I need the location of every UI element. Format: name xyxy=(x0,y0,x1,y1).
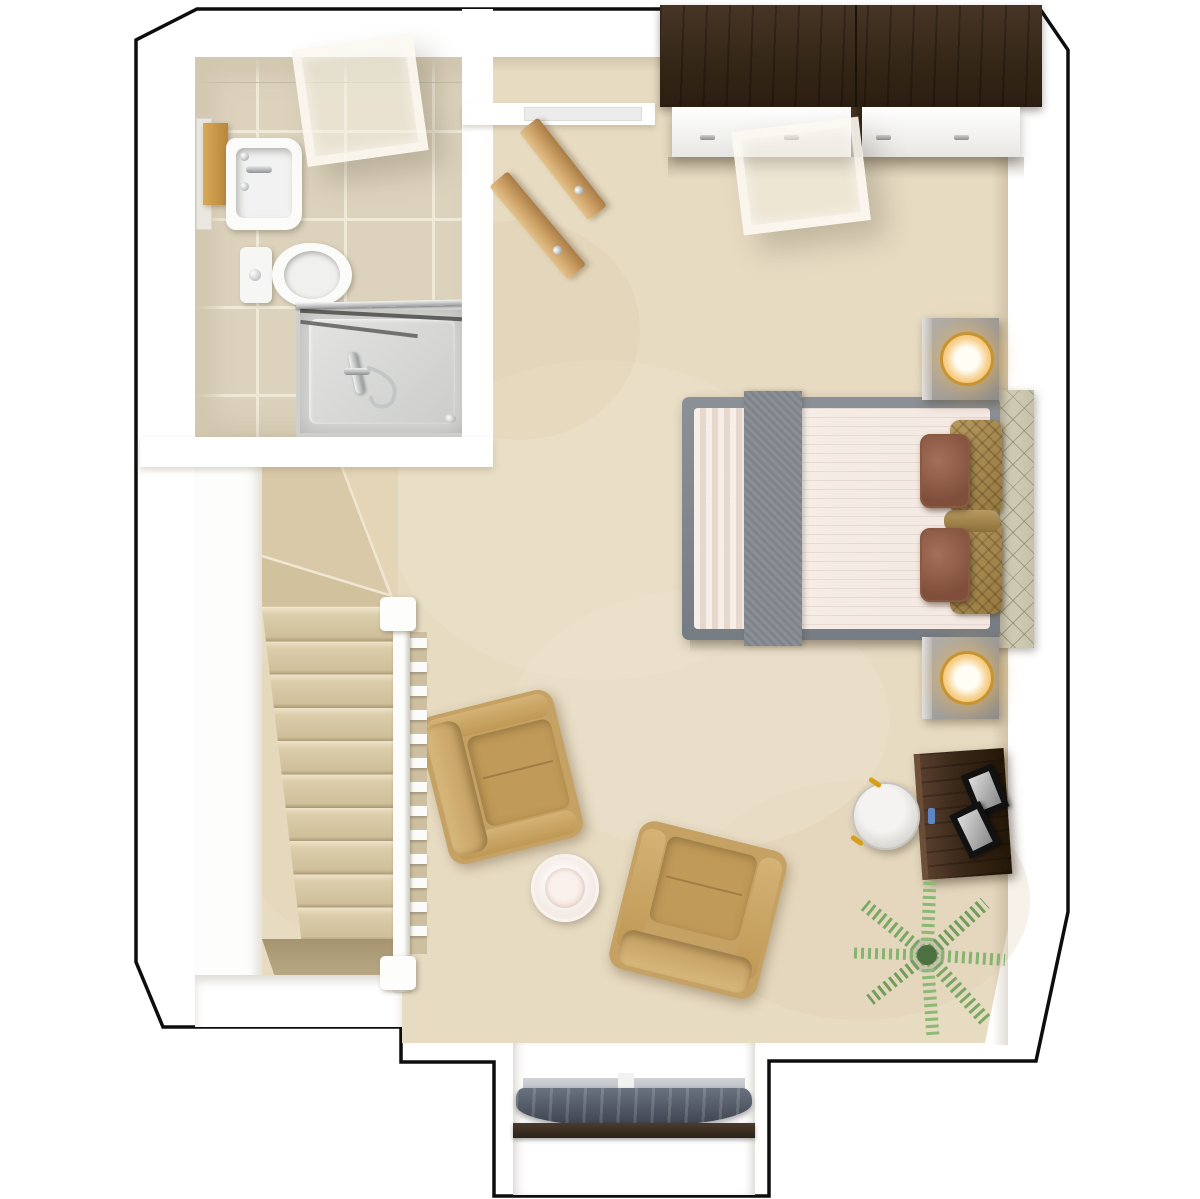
pillow-brown-bottom xyxy=(920,528,970,602)
round-side-table xyxy=(531,854,599,922)
wall-bathroom-right xyxy=(462,9,493,467)
plant-center xyxy=(917,945,937,965)
wall-bathroom-bottom xyxy=(140,437,493,467)
banister-rail xyxy=(393,600,410,992)
baluster xyxy=(408,662,427,672)
vanity-shelf xyxy=(203,123,228,205)
baluster xyxy=(408,878,427,888)
door-frame xyxy=(524,107,642,121)
side-table-top xyxy=(545,868,585,908)
faucet-knob-hot xyxy=(240,152,249,161)
closet-door-handle xyxy=(573,184,586,197)
staircase-lower-flight xyxy=(262,939,398,979)
baluster xyxy=(408,926,427,936)
baluster xyxy=(408,710,427,720)
shower-drain xyxy=(444,414,456,423)
faucet xyxy=(246,166,272,173)
wardrobe-handle-1 xyxy=(700,135,715,140)
toilet-bowl xyxy=(272,243,352,307)
newel-post-bottom xyxy=(380,956,416,990)
baluster xyxy=(408,734,427,744)
desk-pen xyxy=(928,808,935,824)
stairwell-bottom-landing xyxy=(195,975,402,1027)
nightstand-face xyxy=(922,637,932,719)
skylight-bathroom xyxy=(291,33,428,167)
baluster xyxy=(408,758,427,768)
stairwell-side-wall xyxy=(195,460,262,1027)
toilet-flush-button xyxy=(249,269,261,281)
baluster xyxy=(408,830,427,840)
sink xyxy=(226,138,302,230)
baluster xyxy=(408,638,427,648)
skylight-bedroom xyxy=(731,117,871,236)
floor-plan xyxy=(0,0,1200,1199)
baluster xyxy=(408,902,427,912)
bathroom-door-handle xyxy=(551,244,564,257)
table-lamp-top xyxy=(940,332,994,386)
stair-winders xyxy=(262,460,398,608)
bathroom-wall-tiles-left xyxy=(195,57,225,437)
pillow-brown-top xyxy=(920,434,970,508)
bed-sheet-fold xyxy=(694,408,746,629)
baluster xyxy=(408,806,427,816)
nightstand-top xyxy=(922,318,999,400)
dormer-window-niche xyxy=(513,1043,755,1195)
newel-post-top xyxy=(380,597,416,631)
wardrobe-handle-3 xyxy=(876,135,891,140)
nightstand-bottom xyxy=(922,637,999,719)
potted-palm xyxy=(835,865,1025,1055)
table-lamp-bottom xyxy=(940,651,994,705)
wardrobe xyxy=(660,5,1042,107)
nightstand-face xyxy=(922,318,932,400)
stool xyxy=(852,782,920,850)
bed-runner xyxy=(744,391,802,646)
wardrobe-seam xyxy=(855,5,857,107)
dormer-curtain xyxy=(516,1088,752,1126)
wardrobe-handle-4 xyxy=(954,135,969,140)
baluster xyxy=(408,686,427,696)
baluster-strip xyxy=(408,632,427,954)
baluster xyxy=(408,854,427,864)
window-sill xyxy=(513,1123,755,1138)
faucet-knob-cold xyxy=(240,182,249,191)
baluster xyxy=(408,782,427,792)
toilet-seat xyxy=(284,251,340,299)
toilet-cistern xyxy=(240,247,272,303)
shower-hose xyxy=(355,360,425,420)
